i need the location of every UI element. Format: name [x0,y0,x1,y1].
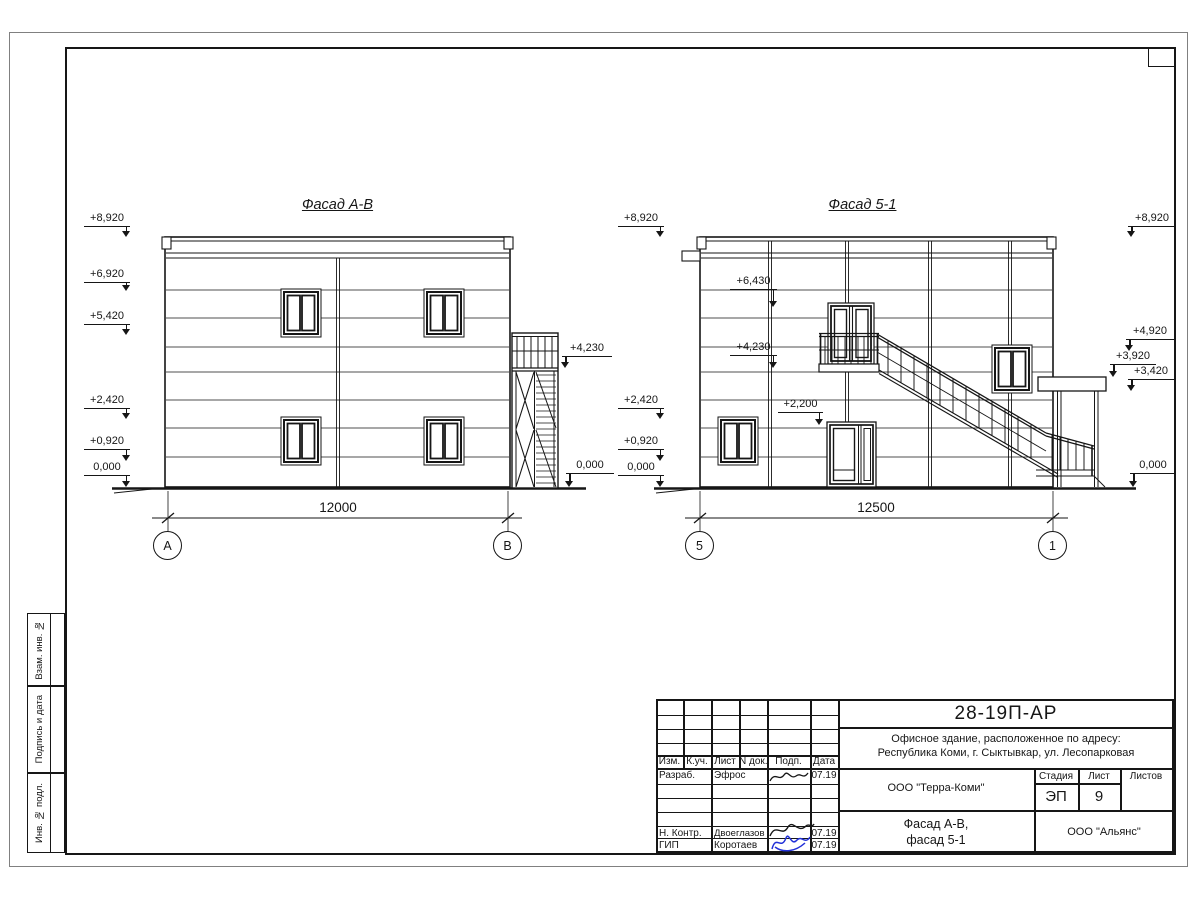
tb-row-name: Коротаев [714,840,766,852]
side-strip-cell: Инв. № подл. [27,773,65,853]
entrance-door [827,422,876,487]
elevation-mark: +4,230 [562,342,612,357]
tb-row-role: Разраб. [659,770,711,782]
elevation-mark: +4,230 [730,341,777,356]
elevation-arrow-icon [1129,340,1131,345]
tb-row-role: Н. Контр. [659,828,713,840]
axis-bubble: В [493,531,522,560]
side-strip-cell: Взам. инв. № [27,613,65,686]
tb-row-date: 07.19 [810,770,838,782]
elevation-arrow-icon [126,283,128,285]
elevation-arrow-icon [660,476,662,481]
elevation-arrow-icon [126,450,128,455]
tb-row-role: ГИП [659,840,711,852]
facade-51-title: Фасад 5-1 [780,197,945,213]
tb-col-header: N док. [739,756,767,768]
drawing-sheet: Фасад А-В Фасад 5-1 +8,920 +6,920 +5,420… [0,0,1200,900]
tb-row-name: Эфрос [714,770,766,782]
side-strip-label: Инв. № подл. [34,783,45,843]
side-strip-cell: Подпись и дата [27,686,65,773]
elevation-mark: +5,420 [84,310,130,325]
contractor-company: ООО "Альянс" [1034,826,1174,838]
elevation-mark: +6,920 [84,268,130,283]
elevation-mark: +2,200 [778,398,823,413]
drawing-title-line1: Фасад А-В, [838,816,1034,832]
elevation-mark: 0,000 [1130,459,1176,474]
designer-company: ООО "Терра-Коми" [838,782,1034,794]
title-block: Изм. К.уч. Лист N док. Подп. Дата Разраб… [656,699,1174,853]
tb-col-header: Лист [711,756,739,768]
doc-number: 28-19П-АР [838,703,1174,725]
elevation-mark: +0,920 [84,435,130,450]
axis-bubble: А [153,531,182,560]
tb-col-header: Подп. [767,756,810,768]
elevation-arrow-icon [126,227,128,231]
elevation-arrow-icon [126,476,128,481]
facade-ab-title: Фасад А-В [255,197,420,213]
tb-row-date: 07.19 [810,840,838,852]
elevation-arrow-icon [1131,227,1133,231]
tb-row-name: Двоеглазов [714,828,768,840]
sheet-value: 9 [1078,788,1120,806]
elevation-mark: +8,920 [618,212,664,227]
elevation-arrow-icon [660,450,662,455]
elevation-mark: +3,920 [1110,350,1156,365]
facade-51-linework [654,237,1136,531]
elevation-arrow-icon [126,325,128,329]
elevation-mark: +0,920 [618,435,664,450]
elevation-arrow-icon [569,474,571,481]
elevation-mark: 0,000 [618,461,664,476]
drawing-title-line2: фасад 5-1 [838,832,1034,848]
elevation-mark: +2,420 [618,394,664,409]
project-address-line1: Офисное здание, расположенное по адресу: [846,732,1166,746]
elevation-mark: +2,420 [84,394,130,409]
elevation-arrow-icon [660,227,662,231]
sheets-label: Листов [1120,771,1172,783]
elevation-arrow-icon [126,409,128,413]
dimension-value: 12000 [300,500,376,515]
dimension-value: 12500 [838,500,914,515]
elevation-mark: 0,000 [84,461,130,476]
elevation-mark: +4,920 [1126,325,1174,340]
elevation-arrow-icon [1133,474,1135,481]
project-address-line2: Республика Коми, г. Сыктывкар, ул. Лесоп… [846,746,1166,760]
tb-col-header: К.уч. [683,756,711,768]
elevation-arrow-icon [660,409,662,413]
elevation-arrow-icon [773,290,775,301]
side-strip-label: Подпись и дата [34,695,45,763]
elevation-mark: 0,000 [566,459,614,474]
stage-label: Стадия [1034,771,1078,783]
tb-col-header: Изм. [656,756,683,768]
stair-tower [512,333,558,488]
elevation-mark: +3,420 [1128,365,1174,380]
axis-bubble: 5 [685,531,714,560]
elevation-arrow-icon [819,413,821,419]
tb-col-header: Дата [810,756,838,768]
elevation-arrow-icon [1113,365,1115,371]
elevation-arrow-icon [773,356,775,362]
axis-bubble: 1 [1038,531,1067,560]
elevation-arrow-icon [1131,380,1133,385]
sheet-label: Лист [1078,771,1120,783]
elevation-arrow-icon [565,357,567,362]
side-strip-label: Взам. инв. № [34,620,45,680]
side-strip: Взам. инв. № Подпись и дата Инв. № подл. [27,613,65,853]
elevation-mark: +6,430 [730,275,777,290]
facade-ab-linework [112,237,586,531]
balcony-slab [819,364,879,372]
signature [768,769,810,784]
elevation-mark: +8,920 [84,212,130,227]
stage-value: ЭП [1034,788,1078,806]
signature [769,831,813,854]
elevation-mark: +8,920 [1128,212,1176,227]
